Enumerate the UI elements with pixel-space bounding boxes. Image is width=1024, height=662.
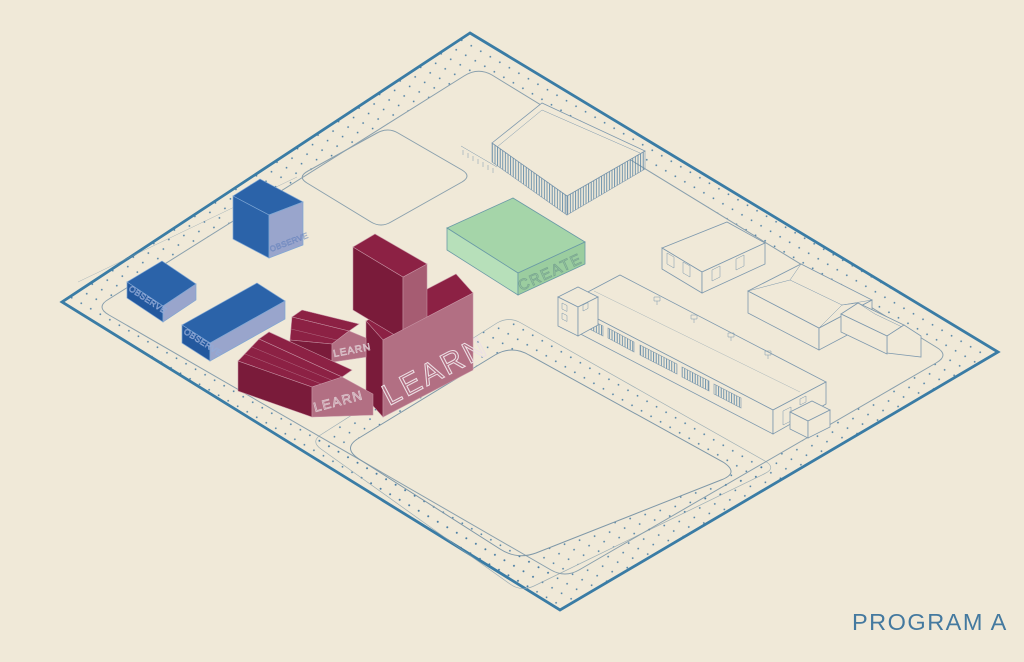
existing-hall-building bbox=[461, 103, 645, 215]
workshop-end-tower bbox=[558, 287, 598, 336]
site-axonometric-diagram: OBSERVE OBSERVE OBSERVE LEARN LEARN bbox=[0, 0, 1024, 662]
hall-colonnade bbox=[461, 146, 497, 173]
program-title: PROGRAM A bbox=[852, 609, 1008, 635]
observe-cube-building: OBSERVE bbox=[233, 179, 310, 258]
